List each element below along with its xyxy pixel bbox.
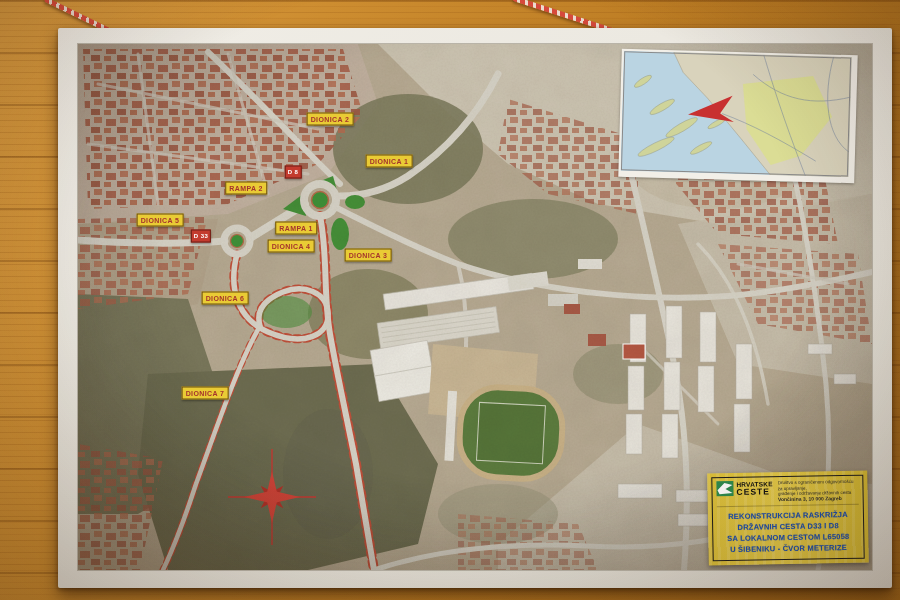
map-label-rampa-1: RAMPA 1	[275, 222, 317, 235]
map-label-dionica-7: DIONICA 7	[182, 387, 229, 400]
map-label-dionica-4: DIONICA 4	[268, 240, 315, 253]
map-label-dionica-2: DIONICA 2	[307, 113, 354, 126]
hrvatske-ceste-logo-icon	[716, 481, 733, 496]
map-label-dionica-6: DIONICA 6	[202, 292, 249, 305]
org-description: Društvo s ograničenom odgovornošću za up…	[778, 479, 859, 502]
inset-location-map	[618, 49, 857, 184]
org-name: HRVATSKE CESTE	[736, 480, 773, 496]
photo-scene: DIONICA 2 DIONICA 1 RAMPA 2 D 8 DIONICA …	[0, 0, 900, 600]
aerial-map: DIONICA 2 DIONICA 1 RAMPA 2 D 8 DIONICA …	[78, 44, 872, 570]
title-block: HRVATSKE CESTE Društvo s ograničenom odg…	[707, 471, 869, 566]
map-label-d33: D 33	[191, 230, 211, 243]
map-label-dionica-1: DIONICA 1	[366, 155, 413, 168]
map-label-rampa-2: RAMPA 2	[225, 182, 267, 195]
map-board: DIONICA 2 DIONICA 1 RAMPA 2 D 8 DIONICA …	[58, 28, 892, 588]
project-title: REKONSTRUKCIJA RASKRIŽJA DRŽAVNIH CESTA …	[717, 509, 860, 555]
map-label-dionica-3: DIONICA 3	[345, 249, 392, 262]
map-label-d8: D 8	[285, 166, 302, 179]
map-label-dionica-5: DIONICA 5	[137, 214, 184, 227]
inset-map-svg	[620, 51, 851, 177]
